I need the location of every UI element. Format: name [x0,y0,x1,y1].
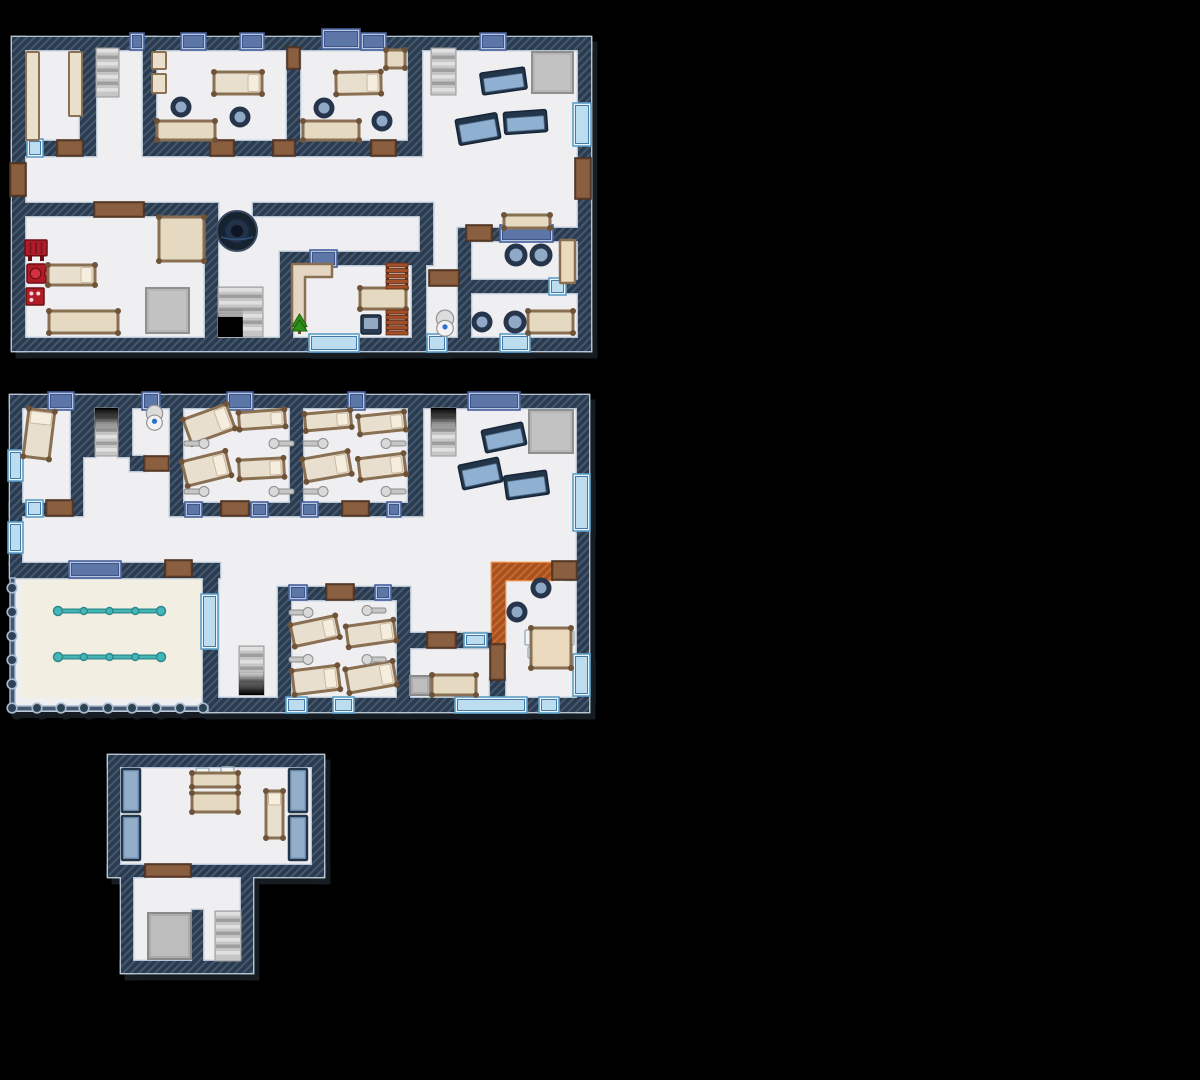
stair-tread [216,945,240,949]
bed-post [211,69,217,75]
window-glass [51,395,72,408]
stairs [218,287,263,337]
door [221,501,249,516]
window-glass [576,657,588,694]
table-leg [429,692,435,698]
window-glass [483,36,504,48]
stool [316,100,332,116]
window [8,522,23,553]
stair-tread [216,932,240,936]
door-panel [146,458,167,469]
bed-pillow [324,668,337,688]
wall-orange [492,563,505,648]
stove-leg [28,256,32,261]
window-glass [576,477,588,529]
storage-box-inner [151,916,188,956]
bench-row-dot [132,608,139,615]
bed-post [280,788,286,794]
door [371,140,396,156]
window [455,697,527,713]
table-leg [383,47,389,53]
radiator-bar [386,263,408,267]
bed-post [45,282,51,288]
table-leg [429,672,435,678]
red-box-dot [29,291,33,295]
bed-post [263,835,269,841]
shelf [152,52,166,69]
radiator-bar [386,331,408,335]
stair-tread [432,62,455,66]
stove-stripe [30,242,32,254]
stair-tread [432,75,455,79]
table-leg [525,308,531,314]
rug-inner [532,413,570,450]
door [144,456,169,471]
door [552,561,577,580]
table-leg [201,214,207,220]
rail-knob [269,487,279,497]
armchair-seat [364,318,378,329]
radiator-bar [386,315,408,319]
floor-plan-basement [108,755,324,973]
window [27,139,43,157]
porch-post [7,583,17,593]
table-leg [46,308,52,314]
toilet-flush [442,324,447,329]
porch-post [32,703,42,713]
window-glass [503,337,528,350]
door-panel [289,49,298,67]
window-glass [72,564,119,576]
rail-knob [381,487,391,497]
window [375,585,391,600]
table-leg [189,770,195,776]
radiator-bar [386,274,408,278]
stairs-void [239,671,264,696]
sofa [504,470,550,500]
wall [170,395,183,516]
table-leg [189,790,195,796]
wall [408,37,422,151]
door-panel [429,634,454,646]
table-leg [383,65,389,71]
door [145,864,191,877]
door-panel [48,502,71,514]
radiator-bar [386,326,408,330]
stairs-void [431,408,456,432]
table-leg [300,118,306,124]
door-panel [59,142,81,154]
stove-leg [40,256,44,261]
table-leg [525,330,531,336]
door-panel [223,503,247,514]
table-leg [473,672,479,678]
floor-plan-middle [7,392,590,713]
window-glass [313,253,335,265]
blue-shelf-inner [125,772,137,809]
bench-row-dot [80,654,87,661]
window [480,33,506,50]
table-leg [570,330,576,336]
window-glass [11,525,21,551]
table-leg [235,790,241,796]
wall [121,877,133,973]
stair-tread [216,925,240,929]
stool [507,246,525,264]
radiator-bar [386,280,408,284]
table-leg [402,65,408,71]
window [573,103,591,146]
radiator-bar [386,321,408,325]
floor-plan-top [10,29,591,352]
porch-post [198,703,208,713]
table-leg [547,212,553,218]
sofa [503,110,547,135]
bed-pillow [30,411,52,425]
table-top [49,311,118,333]
stair-tread [432,442,455,446]
toilet [436,310,453,336]
window-glass [289,700,305,711]
rail-knob [381,439,391,449]
rail-knob [269,439,279,449]
table [189,790,241,815]
window [387,502,401,517]
door [10,163,26,196]
window [322,29,360,49]
table-leg [570,308,576,314]
toilet-flush [152,419,157,424]
porch-post [175,703,185,713]
window [201,594,218,649]
window-glass [188,505,200,515]
table-top [157,121,215,140]
window [185,502,202,517]
table-leg [300,137,306,143]
dining-table-with-chairs [525,625,574,671]
stair-tread [240,647,263,651]
window [289,585,307,600]
table-leg [154,118,160,124]
dining-table [531,628,571,668]
window-glass [30,142,41,155]
porch-post [127,703,137,713]
rail-knob [362,606,372,616]
table-top [432,675,476,695]
bed-pillow [390,456,403,473]
wall [203,698,589,712]
table-leg [212,137,218,143]
window [539,697,559,713]
window-glass [542,700,557,711]
red-box [26,288,44,305]
door [326,584,354,600]
radiator [386,263,408,289]
wall [108,865,145,877]
window-glass [390,505,399,515]
bench-row-dot [54,653,63,662]
stair-tread [432,49,455,53]
window-glass [325,32,358,47]
table-top [192,773,238,787]
porch-post [103,703,113,713]
door [94,202,144,217]
door [57,140,83,156]
cabinet [560,240,575,283]
door-panel [373,142,394,154]
spinner-wheel [30,268,41,279]
wall [192,910,203,961]
window-glass [184,36,204,48]
table-leg [402,47,408,53]
table [154,118,218,143]
porch-post [7,679,17,689]
window [26,500,43,517]
bed-post [45,262,51,268]
stairs [239,646,264,695]
stair-tread [97,88,118,92]
porch-post [7,655,17,665]
rail-knob [362,655,372,665]
wall [290,395,303,516]
bench-row-dot [80,608,87,615]
wall [170,503,421,516]
stairs [431,48,456,95]
wall [12,203,94,216]
door-panel [554,563,575,578]
bed [45,262,98,288]
window-glass [467,636,485,645]
porch-post [79,703,89,713]
window-glass [576,106,589,144]
floorplan-canvas [0,0,1200,1080]
stool [173,99,189,115]
stair-tread [240,654,263,658]
stair-tread [216,951,240,955]
table-leg [235,770,241,776]
wall [108,755,120,877]
window-glass [336,700,352,711]
bed-post [263,788,269,794]
door [165,560,192,577]
table-leg [357,306,363,312]
bed [211,69,265,97]
stair-tread [97,69,118,73]
stair-tread [432,82,455,86]
bed-pillow [380,623,393,640]
window [240,33,264,50]
door-panel [328,586,352,598]
bed [235,455,287,483]
door-panel [12,165,24,194]
door-panel [468,227,490,239]
radiator-bar [386,310,408,314]
table [189,770,241,790]
table-leg [154,137,160,143]
table-leg [46,330,52,336]
bed [263,788,286,841]
bench-row-dot [106,608,113,615]
stool [374,113,390,129]
door-panel [167,562,190,575]
window-glass [254,505,266,515]
stool [532,246,550,264]
bed-post [211,91,217,97]
door-panel [344,503,367,514]
table [300,118,362,143]
table-leg [212,118,218,124]
wall [408,395,423,516]
table [501,212,553,231]
radiator-bar [386,269,408,273]
rail-knob [199,487,209,497]
shelf [69,52,82,116]
stairs [95,408,118,456]
bed-pillow [336,413,348,426]
door [342,501,369,516]
window [69,561,121,578]
bed-pillow [270,460,282,475]
rug-inner [535,55,570,90]
shelf [152,74,166,93]
stair-tread [96,448,117,452]
porch-post [151,703,161,713]
toilet [146,405,162,430]
wall [312,755,324,877]
table-top [192,793,238,812]
red-box-dot [36,291,40,295]
bed-pillow [271,412,283,425]
red-box-dot [29,298,33,302]
window-glass [292,588,305,598]
stair-tread [432,88,455,92]
bed-pillow [367,74,378,91]
bench-row-dot [54,607,63,616]
stair-tread [97,62,118,66]
table-top [159,217,204,261]
window [500,334,530,352]
stool [474,314,490,330]
table-leg [356,137,362,143]
storage-box-inner [413,679,427,692]
door [466,225,492,241]
door-panel [492,646,503,678]
door-panel [431,272,457,284]
room-floor [22,578,203,698]
rug-inner [149,291,186,330]
window-glass [458,700,525,711]
door-panel [96,204,142,215]
wall [144,203,218,216]
wall [253,203,433,216]
window-glass [364,36,384,48]
table [156,214,207,264]
stairs [215,911,241,961]
table-leg [501,225,507,231]
bench-row-dot [132,654,139,661]
table-leg [156,258,162,264]
table-leg [501,212,507,218]
bed-post [259,91,265,97]
window-glass [204,597,216,647]
table [525,308,576,336]
window-glass [243,36,262,48]
table-leg [189,784,195,790]
blue-shelf-inner [292,819,304,857]
stair-tread [97,56,118,60]
table-leg [115,330,121,336]
bed-post [92,282,98,288]
door [287,47,300,69]
table-leg [235,809,241,815]
window-glass [11,453,21,479]
bed-pillow [248,75,259,92]
stool [533,580,549,596]
table-leg [528,625,534,631]
window [251,502,268,517]
door [429,270,459,286]
wall [83,395,95,457]
door [46,500,73,516]
bed [333,69,384,98]
porch-post [56,703,66,713]
bench-row-dot [106,654,113,661]
window [301,502,318,517]
stair-tread [240,667,263,671]
door [427,632,456,648]
window-glass [304,505,316,515]
stairs-void [95,408,118,432]
table [429,672,479,698]
window-glass [230,395,251,408]
floorplan-svg [0,0,1200,1080]
window-glass [133,36,142,48]
rail-knob [303,608,313,618]
wall [130,456,145,471]
shelf [26,52,39,140]
stair-tread [432,448,455,452]
door-panel [212,142,232,154]
stair-tread [97,49,118,53]
table-top [386,50,405,68]
window [309,334,359,352]
wall [108,755,324,767]
window-glass [471,395,518,408]
window-glass [351,395,363,408]
stair-tread [216,938,240,942]
bed-post [259,69,265,75]
stair-tread [219,301,262,305]
door [575,158,591,199]
porch-post [7,631,17,641]
table-leg [156,214,162,220]
table-top [303,121,359,140]
bed-post [92,262,98,268]
window [573,474,590,531]
door-panel [147,866,189,875]
table-leg [235,784,241,790]
table [46,308,121,336]
table-leg [547,225,553,231]
stool [232,109,248,125]
porch-post [7,703,17,713]
stairs [96,48,119,97]
window [227,392,253,410]
wall [118,395,132,457]
window-glass [430,337,445,350]
stair-tread [216,919,240,923]
wall [397,587,410,712]
